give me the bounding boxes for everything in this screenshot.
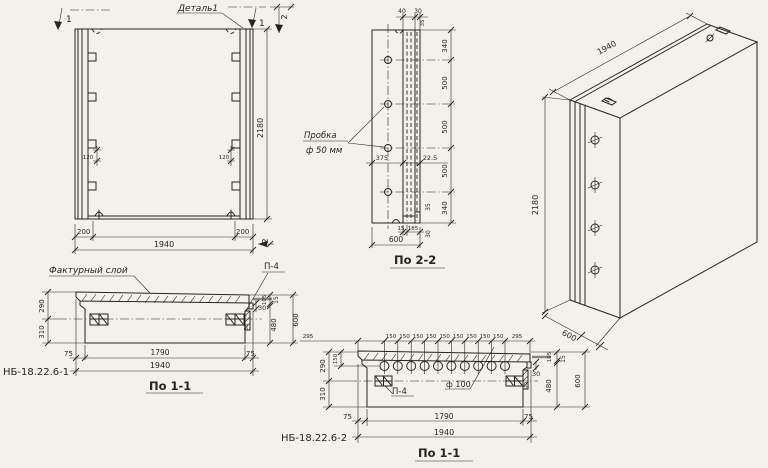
plug-label-line1: Пробка	[304, 131, 337, 141]
dim-375: 375	[376, 154, 388, 162]
dim-height-2180: 2180	[256, 118, 265, 138]
sa-dim-480: 480	[270, 318, 278, 331]
sb-dim-30: 30	[532, 370, 540, 378]
plug-label-line2: ф 50 мм	[306, 146, 343, 156]
sb-view-title: По 1-1	[418, 446, 460, 460]
dim-340-top: 340	[441, 39, 449, 52]
sb-dim-15: 15	[560, 355, 567, 363]
dim-rib-right-200: 200	[236, 228, 249, 236]
sa-dim-105: 105	[262, 294, 268, 305]
section-marker-1-left: 1	[66, 15, 72, 25]
dim-width-1940: 1940	[154, 240, 174, 249]
sa-dim-1790: 1790	[150, 348, 169, 357]
sb-dim-1790: 1790	[434, 412, 453, 421]
iso-dim-height-2180: 2180	[531, 195, 540, 215]
dim-340-bottom: 340	[441, 201, 449, 214]
dim-15-bottom: 15	[398, 226, 405, 232]
dim-500-c: 500	[441, 164, 449, 177]
section-marker-2-bottom: 2	[261, 238, 270, 243]
sb-dim-75-right: 75	[524, 413, 533, 421]
sb-dim-150-1: 150	[386, 334, 397, 340]
sa-dim-600: 600	[292, 313, 300, 326]
sa-dim-75-right: 75	[246, 350, 255, 358]
detail-callout-label: Деталь1	[177, 4, 218, 14]
sa-dim-15: 15	[273, 296, 280, 304]
sa-dim-310: 310	[38, 325, 46, 338]
sa-dim-75-left: 75	[64, 350, 73, 358]
dim-groove-left-120: 120	[83, 155, 94, 161]
sa-view-title: По 1-1	[149, 379, 191, 393]
sb-dim-1940: 1940	[434, 428, 454, 437]
section-marker-1-right: 1	[259, 19, 265, 29]
dim-30-right: 30	[425, 230, 432, 238]
sb-dim-150-4: 150	[426, 334, 437, 340]
dim-30-top: 30	[414, 8, 422, 15]
sb-dim-600: 600	[574, 374, 582, 387]
sb-dim-150-2: 150	[399, 334, 410, 340]
sa-dim-290: 290	[38, 299, 46, 312]
sb-dim-75-left: 75	[343, 413, 352, 421]
blueprint-canvas: 1 1 2 2 Деталь1 2180 120 120 200 200 194…	[0, 0, 768, 468]
view-title-po-2-2: По 2-2	[394, 253, 436, 267]
sb-hole-label-f100: ф 100	[446, 380, 471, 389]
sa-dim-1940: 1940	[150, 361, 170, 370]
sa-dim-35: 35	[244, 323, 250, 330]
dim-22-5: 22.5	[423, 154, 437, 162]
paper-background	[0, 0, 768, 468]
dim-185-bottom: 185	[408, 226, 419, 232]
sb-dim-150-8: 150	[480, 334, 491, 340]
sb-dim-150-6: 150	[453, 334, 464, 340]
sb-dim-480: 480	[545, 379, 553, 392]
dim-35-top: 35	[420, 19, 426, 26]
sb-dim-150-5: 150	[439, 334, 450, 340]
dim-500-b: 500	[441, 120, 449, 133]
sa-mark-label: НБ-18.22.6-1	[3, 367, 69, 378]
sa-p4-label: П-4	[264, 262, 279, 272]
sb-dim-150-7: 150	[466, 334, 477, 340]
sb-dim-310: 310	[319, 387, 327, 400]
dim-40: 40	[398, 8, 406, 15]
sb-dim-150-9: 150	[493, 334, 504, 340]
sb-dim-35: 35	[523, 381, 529, 388]
texture-layer-label: Фактурный слой	[49, 266, 128, 276]
dim-500-a: 500	[441, 76, 449, 89]
dim-35-right: 35	[425, 203, 432, 211]
sb-dim-295-left: 295	[303, 334, 314, 340]
sb-p4-label: П-4	[392, 387, 407, 397]
section-marker-2-top: 2	[280, 14, 289, 19]
sb-mark-label: НБ-18.22.6-2	[281, 433, 347, 444]
sb-dim-290: 290	[319, 359, 327, 372]
sb-dim-150-left: 150	[333, 353, 339, 364]
dim-600-bottom: 600	[389, 235, 404, 244]
sb-dim-105: 105	[547, 351, 553, 362]
dim-groove-right-120: 120	[219, 155, 230, 161]
dim-rib-left-200: 200	[77, 228, 90, 236]
sb-dim-295-right: 295	[512, 334, 523, 340]
sb-dim-150-3: 150	[413, 334, 424, 340]
